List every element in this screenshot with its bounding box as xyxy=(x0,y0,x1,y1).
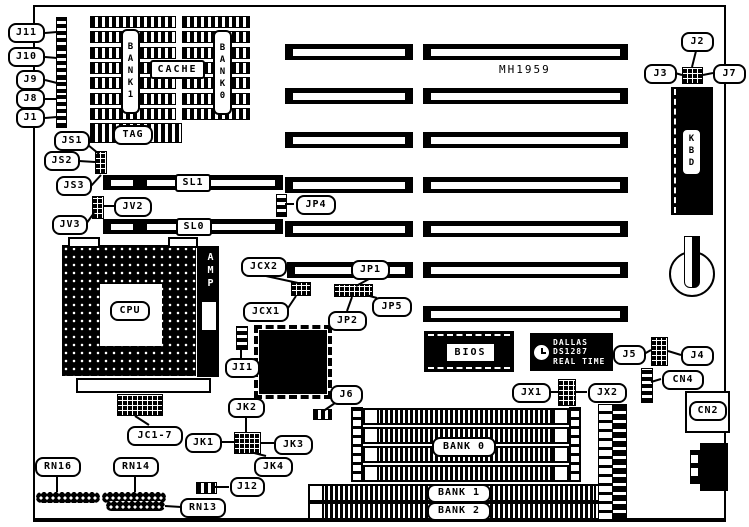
part-number: MH1959 xyxy=(499,63,551,76)
isa-slot xyxy=(423,88,628,104)
callout-ji1: JI1 xyxy=(225,358,260,378)
callout-jp4: JP4 xyxy=(296,195,336,215)
isa-slot xyxy=(285,177,413,193)
jcx1-header xyxy=(291,282,311,296)
callout-j9: J9 xyxy=(16,70,45,90)
din-pin xyxy=(691,468,698,476)
callout-cn4: CN4 xyxy=(662,370,704,390)
label-tag: TAG xyxy=(113,125,153,145)
jp1-jp5-header xyxy=(334,284,373,297)
din-pin xyxy=(691,455,698,463)
callout-cn2: CN2 xyxy=(689,401,727,421)
isa-slot xyxy=(423,221,628,237)
simm-rail xyxy=(351,407,363,482)
simm-slot-bank0 xyxy=(363,408,569,425)
cn4-header xyxy=(641,368,653,403)
callout-j2: J2 xyxy=(681,32,714,52)
callout-j10: J10 xyxy=(8,47,45,67)
callout-jcx1: JCX1 xyxy=(243,302,289,322)
callout-j8: J8 xyxy=(16,89,45,109)
rtc-model: DS1287 xyxy=(553,347,605,356)
callout-j11: J11 xyxy=(8,23,45,43)
ji1-header xyxy=(236,326,248,350)
cpu-label: CPU xyxy=(110,301,150,321)
cpu-socket-tab xyxy=(68,237,100,248)
label-sl0: SL0 xyxy=(176,218,212,236)
callout-j12: J12 xyxy=(230,477,265,497)
rtc-chip: DALLAS DS1287 REAL TIME xyxy=(530,333,613,371)
power-connector xyxy=(598,404,627,520)
amp-window xyxy=(200,300,218,332)
isa-slot xyxy=(423,177,628,193)
callout-jk4: JK4 xyxy=(254,457,293,477)
cpu-socket-bar xyxy=(76,378,211,393)
callout-j3: J3 xyxy=(644,64,677,84)
rn13-network xyxy=(106,501,165,511)
callout-jp1: JP1 xyxy=(351,260,390,280)
amp-label: AMP xyxy=(200,252,216,296)
isa-slot xyxy=(287,262,413,278)
isa-slot xyxy=(423,262,628,278)
label-bank1: BANK 1 xyxy=(427,484,491,503)
callout-jc1-7: JC1-7 xyxy=(127,426,183,446)
j12-header xyxy=(196,482,217,494)
callout-jv3: JV3 xyxy=(52,215,88,235)
callout-j4: J4 xyxy=(681,346,714,366)
js-header xyxy=(95,151,107,174)
label-bank0-vertical: BANK0 xyxy=(213,30,232,115)
callout-jx2: JX2 xyxy=(588,383,627,403)
isa-slot xyxy=(423,132,628,148)
label-sl1: SL1 xyxy=(175,174,211,192)
callout-rn14: RN14 xyxy=(113,457,159,477)
isa-slot xyxy=(285,88,413,104)
isa-slot xyxy=(423,44,628,60)
callout-js2: JS2 xyxy=(44,151,80,171)
motherboard-diagram: AMP BIOS DALLAS DS1287 REAL TIME KBD xyxy=(0,0,749,527)
callout-jp2: JP2 xyxy=(328,311,367,331)
clock-icon xyxy=(534,345,549,360)
simm-rail xyxy=(569,407,581,482)
j10-header xyxy=(56,49,67,80)
callout-j6: J6 xyxy=(330,385,363,405)
callout-jv2: JV2 xyxy=(114,197,152,217)
isa-slot xyxy=(285,221,413,237)
j2-j3-j7-header xyxy=(682,67,703,84)
rn16-network xyxy=(36,492,100,503)
cpu-socket-tab xyxy=(168,237,198,248)
bios-label: BIOS xyxy=(446,343,495,362)
rtc-brand: DALLAS xyxy=(553,338,605,347)
callout-j1: J1 xyxy=(16,108,45,128)
callout-rn16: RN16 xyxy=(35,457,81,477)
label-bank2: BANK 2 xyxy=(427,502,491,521)
label-cache: CACHE xyxy=(150,60,205,79)
j11-header xyxy=(56,17,67,50)
callout-jk1: JK1 xyxy=(185,433,222,453)
din-connector xyxy=(700,443,728,491)
isa-slot xyxy=(285,132,413,148)
callout-j5: J5 xyxy=(613,345,646,365)
simm-slot-bank0 xyxy=(363,465,569,482)
battery-key xyxy=(684,236,700,288)
callout-js1: JS1 xyxy=(54,131,90,151)
callout-jk2: JK2 xyxy=(228,398,265,418)
rtc-type: REAL TIME xyxy=(553,357,605,366)
callout-jp5: JP5 xyxy=(372,297,412,317)
callout-jk3: JK3 xyxy=(274,435,313,455)
isa-slot xyxy=(423,306,628,322)
j5-j4-header xyxy=(651,337,668,366)
callout-jx1: JX1 xyxy=(512,383,551,403)
jx-header xyxy=(558,379,576,406)
jk-header xyxy=(234,432,261,454)
j1-header xyxy=(56,112,67,128)
callout-jcx2: JCX2 xyxy=(241,257,287,277)
callout-rn13: RN13 xyxy=(180,498,226,518)
kbd-label: KBD xyxy=(681,128,702,176)
isa-slot xyxy=(285,44,413,60)
jv-header xyxy=(92,196,104,219)
jc1-7-header xyxy=(117,394,163,416)
callout-js3: JS3 xyxy=(56,176,92,196)
label-bank1-vertical: BANK1 xyxy=(121,29,140,114)
j8-header xyxy=(56,92,67,114)
label-bank0: BANK 0 xyxy=(432,437,496,457)
callout-j7: J7 xyxy=(713,64,746,84)
j6-header xyxy=(313,409,332,420)
chipset-qfp xyxy=(259,330,327,394)
jp4-header xyxy=(276,194,287,217)
